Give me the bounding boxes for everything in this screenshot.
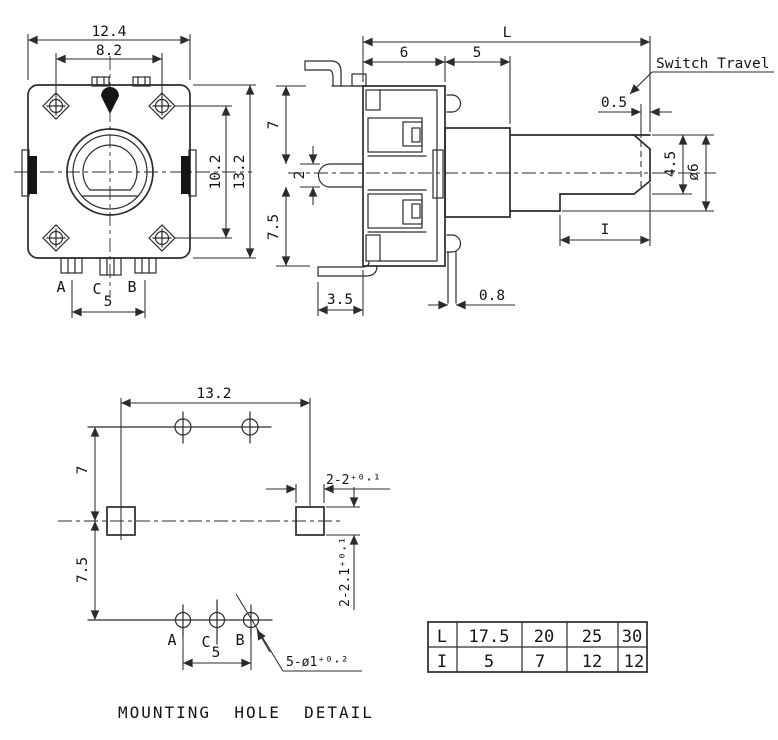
svg-text:6: 6 xyxy=(400,45,409,61)
side-top-terminal xyxy=(305,61,341,86)
dim-side-lower: 7.5 xyxy=(266,187,310,266)
front-pin-a-label: A xyxy=(56,278,65,296)
front-pin-b-label: B xyxy=(127,278,136,296)
svg-text:2-2⁺⁰·¹: 2-2⁺⁰·¹ xyxy=(326,473,381,488)
dim-lug-thickness: 2 xyxy=(292,146,320,205)
svg-text:13.2: 13.2 xyxy=(197,386,232,402)
technical-drawing: A C B 12.4 8.2 10.2 13.2 xyxy=(0,0,778,740)
side-support-lug xyxy=(319,164,364,187)
dim-pin-offset: 3.5 xyxy=(318,270,363,316)
drawing-page: A C B 12.4 8.2 10.2 13.2 xyxy=(0,0,778,740)
dim-detail-upper: 7 xyxy=(75,427,95,521)
svg-text:5: 5 xyxy=(473,45,482,61)
table-row-I: I 5 7 12 12 xyxy=(437,652,644,672)
svg-text:10.2: 10.2 xyxy=(208,155,224,190)
dim-detail-lower: 7.5 xyxy=(75,521,95,620)
dim-slot-width: 2-2⁺⁰·¹ xyxy=(266,473,390,503)
svg-text:13.2: 13.2 xyxy=(232,155,248,190)
dimension-table: L 17.5 20 25 30 I 5 7 12 12 xyxy=(428,622,647,672)
dim-front-height-outer: 13.2 xyxy=(193,85,256,258)
svg-text:0.5: 0.5 xyxy=(601,95,627,111)
side-bushing xyxy=(445,128,510,217)
detail-pin-b-label: B xyxy=(235,631,244,649)
svg-text:5: 5 xyxy=(104,294,113,310)
svg-text:2: 2 xyxy=(292,171,308,180)
svg-text:5: 5 xyxy=(212,645,221,661)
svg-text:12: 12 xyxy=(624,652,644,672)
front-pins xyxy=(61,258,156,275)
side-body-internals xyxy=(332,74,461,303)
dim-bracket-gap: 0.8 xyxy=(428,288,515,305)
dim-body-depth: 6 xyxy=(363,45,445,82)
dim-flat-height: 4.5 xyxy=(652,135,714,194)
dim-side-upper: 7 xyxy=(266,86,320,164)
svg-text:2-2.1⁺⁰·¹: 2-2.1⁺⁰·¹ xyxy=(338,537,353,607)
svg-text:20: 20 xyxy=(534,627,554,647)
table-row-L: L 17.5 20 25 30 xyxy=(437,627,642,647)
svg-text:30: 30 xyxy=(622,627,642,647)
svg-text:L: L xyxy=(503,25,512,41)
svg-text:Switch Travel: Switch Travel xyxy=(656,56,770,72)
svg-text:I: I xyxy=(601,222,610,238)
svg-text:L: L xyxy=(437,627,447,647)
side-bottom-terminal xyxy=(318,262,377,276)
svg-text:5-ø1⁺⁰·²: 5-ø1⁺⁰·² xyxy=(286,655,349,670)
svg-text:25: 25 xyxy=(582,627,602,647)
dim-slot-height: 2-2.1⁺⁰·¹ xyxy=(326,487,360,610)
svg-text:7: 7 xyxy=(535,652,545,672)
index-marker xyxy=(101,87,119,114)
switch-travel-callout: Switch Travel xyxy=(630,56,774,94)
side-view: L 6 5 Switch Travel 0.5 xyxy=(266,25,774,316)
mounting-hole-detail: A C B 13.2 7 7.5 2-2⁺⁰·¹ xyxy=(58,386,390,722)
front-side-tabs xyxy=(22,150,196,196)
dim-detail-width: 13.2 xyxy=(121,386,310,540)
detail-caption: MOUNTING HOLE DETAIL xyxy=(118,703,374,722)
svg-text:7: 7 xyxy=(266,121,282,130)
svg-text:I: I xyxy=(437,652,447,672)
front-pin-c-label: C xyxy=(92,280,101,298)
svg-text:3.5: 3.5 xyxy=(327,292,353,308)
svg-text:12: 12 xyxy=(582,652,602,672)
svg-text:7.5: 7.5 xyxy=(75,557,91,583)
svg-text:4.5: 4.5 xyxy=(663,151,679,177)
detail-bracket-holes xyxy=(88,412,271,443)
dim-shaft-length: L xyxy=(363,25,650,132)
svg-text:5: 5 xyxy=(484,652,494,672)
detail-pin-a-label: A xyxy=(167,631,176,649)
svg-text:8.2: 8.2 xyxy=(96,43,122,59)
detail-pin-c-label: C xyxy=(201,633,210,651)
svg-text:ø6: ø6 xyxy=(686,163,702,180)
svg-text:0.8: 0.8 xyxy=(479,288,505,304)
dim-switch-travel: 0.5 xyxy=(598,95,672,138)
svg-text:12.4: 12.4 xyxy=(92,24,127,40)
front-view: A C B 12.4 8.2 10.2 13.2 xyxy=(14,24,256,318)
svg-text:17.5: 17.5 xyxy=(469,627,510,647)
svg-text:7: 7 xyxy=(75,466,91,475)
svg-text:7.5: 7.5 xyxy=(266,214,282,240)
